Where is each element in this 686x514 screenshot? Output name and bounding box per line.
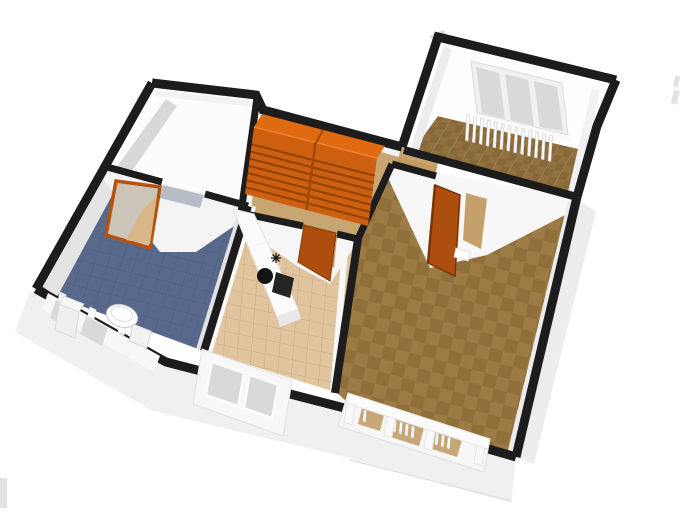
sink-basin[interactable] — [257, 268, 273, 284]
floorplan-canvas — [0, 0, 686, 514]
left-edge-artifact — [0, 478, 7, 508]
burner-icon — [271, 253, 281, 263]
floorplan-3d-view — [0, 0, 686, 514]
wall-kitchen-north-b[interactable] — [337, 234, 358, 239]
